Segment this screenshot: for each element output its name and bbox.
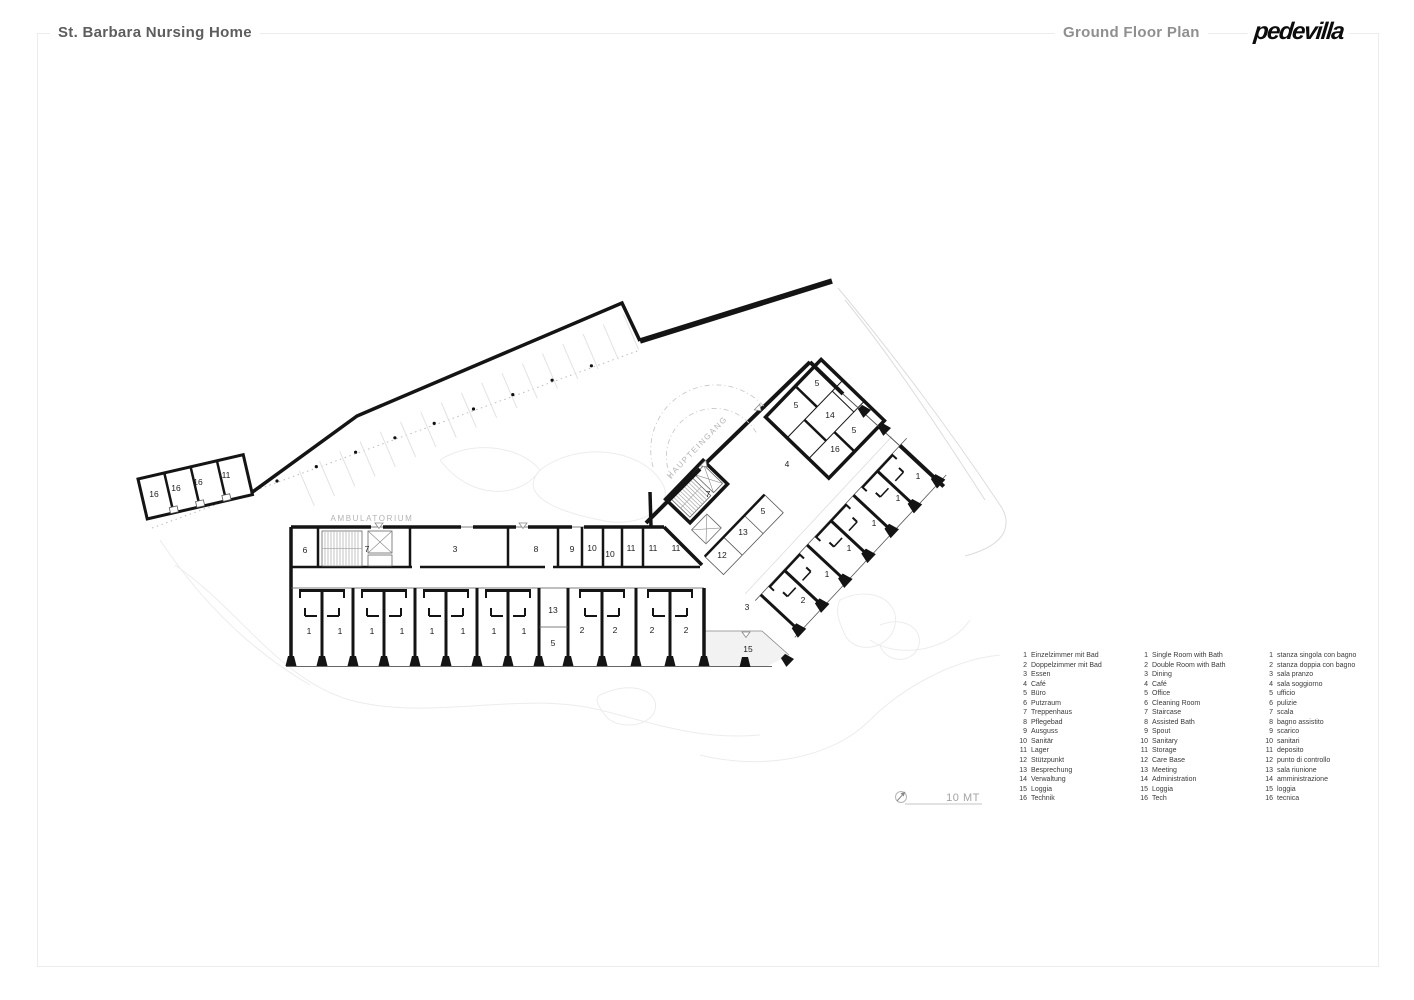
legend-item-label: Staircase (1152, 708, 1181, 718)
legend-item: 13sala riunione (1262, 766, 1383, 776)
compass-north-arrow-icon (896, 792, 907, 803)
legend-item: 11deposito (1262, 746, 1383, 756)
legend-item: 2Doppelzimmer mit Bad (1016, 661, 1137, 671)
legend-item-label: amministrazione (1277, 775, 1328, 785)
room-label: 11 (649, 543, 658, 553)
legend: 1Einzelzimmer mit Bad2Doppelzimmer mit B… (1016, 651, 1383, 804)
room-label: 11 (672, 543, 681, 553)
legend-item-number: 4 (1137, 680, 1148, 690)
room-label: 1 (307, 626, 312, 636)
legend-item-label: Café (1152, 680, 1167, 690)
legend-item-number: 2 (1137, 661, 1148, 671)
legend-item-label: Sanitär (1031, 737, 1053, 747)
room-label: 1 (896, 493, 901, 503)
room-label: 7 (365, 544, 370, 554)
legend-item-label: Technik (1031, 794, 1055, 804)
legend-item-number: 4 (1262, 680, 1273, 690)
plan-annotation: AMBULATORIUM (331, 514, 414, 523)
legend-item-number: 1 (1137, 651, 1148, 661)
site-walls (247, 281, 832, 496)
legend-item-label: sala riunione (1277, 766, 1317, 776)
room-label: 16 (193, 477, 203, 487)
pedevilla-logo: pedevilla (1247, 18, 1351, 46)
room-label: 8 (534, 544, 539, 554)
legend-item-number: 13 (1262, 766, 1273, 776)
room-label: 16 (149, 489, 159, 499)
legend-item-number: 8 (1137, 718, 1148, 728)
legend-item-number: 12 (1137, 756, 1148, 766)
legend-item: 3sala pranzo (1262, 670, 1383, 680)
legend-item-number: 14 (1262, 775, 1273, 785)
legend-item-label: bagno assistito (1277, 718, 1324, 728)
room-label: 1 (825, 569, 830, 579)
room-label: 1 (400, 626, 405, 636)
legend-item-number: 11 (1262, 746, 1273, 756)
legend-item-label: Café (1031, 680, 1046, 690)
room-label: 1 (872, 518, 877, 528)
room-label: 1 (522, 626, 527, 636)
legend-item: 14Verwaltung (1016, 775, 1137, 785)
legend-item-label: scarico (1277, 727, 1299, 737)
legend-item: 13Meeting (1137, 766, 1262, 776)
legend-item-label: Stützpunkt (1031, 756, 1064, 766)
room-label: 11 (222, 470, 231, 480)
legend-item-label: Cleaning Room (1152, 699, 1200, 709)
room-label: 2 (650, 625, 655, 635)
room-label: 2 (613, 625, 618, 635)
legend-item-number: 13 (1137, 766, 1148, 776)
room-label: 5 (551, 638, 556, 648)
legend-column-it: 1stanza singola con bagno2stanza doppia … (1262, 651, 1383, 804)
project-title: St. Barbara Nursing Home (50, 24, 260, 41)
legend-item-label: Administration (1152, 775, 1196, 785)
legend-item-label: Sanitary (1152, 737, 1178, 747)
legend-item: 15Loggia (1137, 785, 1262, 795)
legend-item-number: 16 (1016, 794, 1027, 804)
legend-item-number: 15 (1137, 785, 1148, 795)
legend-item-number: 3 (1016, 670, 1027, 680)
legend-item-number: 8 (1016, 718, 1027, 728)
room-label: 5 (852, 425, 857, 435)
room-label: 1 (847, 543, 852, 553)
legend-item: 8Pflegebad (1016, 718, 1137, 728)
legend-item-label: Besprechung (1031, 766, 1072, 776)
legend-item: 4Café (1016, 680, 1137, 690)
legend-item-number: 6 (1137, 699, 1148, 709)
legend-item-number: 2 (1262, 661, 1273, 671)
bedroom-wing (745, 430, 950, 643)
legend-item-number: 5 (1016, 689, 1027, 699)
legend-item-number: 7 (1137, 708, 1148, 718)
room-label: 12 (717, 550, 727, 560)
legend-item-number: 14 (1137, 775, 1148, 785)
legend-item: 8bagno assistito (1262, 718, 1383, 728)
legend-item: 5Office (1137, 689, 1262, 699)
room-label: 2 (580, 625, 585, 635)
legend-item-label: Putzraum (1031, 699, 1061, 709)
legend-item-number: 5 (1262, 689, 1273, 699)
legend-item: 9Spout (1137, 727, 1262, 737)
legend-item-label: Treppenhaus (1031, 708, 1072, 718)
legend-item-number: 15 (1262, 785, 1273, 795)
room-label: 10 (605, 549, 615, 559)
legend-item: 4Café (1137, 680, 1262, 690)
legend-item: 3Dining (1137, 670, 1262, 680)
legend-item-number: 2 (1016, 661, 1027, 671)
legend-item-label: Lager (1031, 746, 1049, 756)
room-label: 7 (706, 489, 711, 499)
legend-item-number: 16 (1262, 794, 1273, 804)
legend-item: 9Ausguss (1016, 727, 1137, 737)
legend-item-label: Ausguss (1031, 727, 1058, 737)
legend-item-label: Office (1152, 689, 1170, 699)
legend-item-label: tecnica (1277, 794, 1299, 804)
legend-item-number: 13 (1016, 766, 1027, 776)
legend-item: 6pulizie (1262, 699, 1383, 709)
legend-item-label: Einzelzimmer mit Bad (1031, 651, 1099, 661)
room-label: 2 (684, 625, 689, 635)
legend-item-number: 6 (1016, 699, 1027, 709)
legend-item: 8Assisted Bath (1137, 718, 1262, 728)
legend-item-label: Büro (1031, 689, 1046, 699)
legend-item: 13Besprechung (1016, 766, 1137, 776)
legend-item-label: Essen (1031, 670, 1050, 680)
room-label: 5 (815, 378, 820, 388)
legend-item: 10sanitari (1262, 737, 1383, 747)
room-label: 2 (801, 595, 806, 605)
room-label: 4 (785, 459, 790, 469)
legend-item-number: 9 (1262, 727, 1273, 737)
legend-item-number: 4 (1016, 680, 1027, 690)
legend-item: 5Büro (1016, 689, 1137, 699)
room-label: 1 (492, 626, 497, 636)
legend-item: 15loggia (1262, 785, 1383, 795)
legend-item-label: Loggia (1031, 785, 1052, 795)
legend-item: 14amministrazione (1262, 775, 1383, 785)
room-label: 1 (338, 626, 343, 636)
legend-item-number: 10 (1137, 737, 1148, 747)
legend-item: 10Sanitary (1137, 737, 1262, 747)
legend-item-label: sala pranzo (1277, 670, 1313, 680)
legend-item-number: 8 (1262, 718, 1273, 728)
room-label: 10 (587, 543, 597, 553)
legend-item: 11Lager (1016, 746, 1137, 756)
room-label: 6 (303, 545, 308, 555)
legend-item: 11Storage (1137, 746, 1262, 756)
room-label: 5 (794, 400, 799, 410)
legend-item: 9scarico (1262, 727, 1383, 737)
legend-item-number: 11 (1137, 746, 1148, 756)
legend-item: 14Administration (1137, 775, 1262, 785)
legend-item: 16Tech (1137, 794, 1262, 804)
legend-item: 7Treppenhaus (1016, 708, 1137, 718)
legend-item-number: 3 (1137, 670, 1148, 680)
legend-item-label: stanza singola con bagno (1277, 651, 1356, 661)
room-label: 5 (761, 506, 766, 516)
legend-item-label: Assisted Bath (1152, 718, 1195, 728)
legend-item-label: sanitari (1277, 737, 1300, 747)
legend-item-number: 15 (1016, 785, 1027, 795)
legend-item: 12Stützpunkt (1016, 756, 1137, 766)
room-label: 16 (830, 444, 840, 454)
legend-item-label: ufficio (1277, 689, 1295, 699)
legend-item: 1Einzelzimmer mit Bad (1016, 651, 1137, 661)
room-label: 9 (570, 544, 575, 554)
legend-item-label: Dining (1152, 670, 1172, 680)
plan-annotation: 10 MT (946, 792, 980, 804)
legend-item-number: 9 (1016, 727, 1027, 737)
legend-item: 12Care Base (1137, 756, 1262, 766)
legend-column-de: 1Einzelzimmer mit Bad2Doppelzimmer mit B… (1016, 651, 1137, 804)
room-label: 3 (453, 544, 458, 554)
legend-item-number: 16 (1137, 794, 1148, 804)
legend-item: 1stanza singola con bagno (1262, 651, 1383, 661)
legend-item-number: 5 (1137, 689, 1148, 699)
legend-item: 6Putzraum (1016, 699, 1137, 709)
legend-item: 16Technik (1016, 794, 1137, 804)
legend-item: 15Loggia (1016, 785, 1137, 795)
legend-item: 4sala soggiorno (1262, 680, 1383, 690)
legend-item-label: Doppelzimmer mit Bad (1031, 661, 1102, 671)
legend-item-label: Storage (1152, 746, 1177, 756)
site-landscape-contours (160, 448, 1000, 762)
legend-item: 5ufficio (1262, 689, 1383, 699)
legend-item-number: 7 (1016, 708, 1027, 718)
legend-item-label: Loggia (1152, 785, 1173, 795)
legend-item-number: 11 (1016, 746, 1027, 756)
legend-item: 3Essen (1016, 670, 1137, 680)
legend-item-number: 1 (1262, 651, 1273, 661)
legend-item-label: pulizie (1277, 699, 1297, 709)
legend-item-label: Spout (1152, 727, 1170, 737)
room-label: 16 (171, 483, 181, 493)
legend-item-number: 10 (1262, 737, 1273, 747)
legend-item: 1Single Room with Bath (1137, 651, 1262, 661)
legend-item: 7Staircase (1137, 708, 1262, 718)
legend-item-label: scala (1277, 708, 1293, 718)
legend-item: 16tecnica (1262, 794, 1383, 804)
room-label: 11 (627, 543, 636, 553)
legend-item-number: 10 (1016, 737, 1027, 747)
room-label: 1 (430, 626, 435, 636)
legend-item: 6Cleaning Room (1137, 699, 1262, 709)
legend-item-label: stanza doppia con bagno (1277, 661, 1355, 671)
legend-item-number: 9 (1137, 727, 1148, 737)
legend-item-label: loggia (1277, 785, 1296, 795)
legend-item-number: 1 (1016, 651, 1027, 661)
room-label: 1 (916, 471, 921, 481)
room-label: 13 (548, 605, 558, 615)
legend-item-number: 6 (1262, 699, 1273, 709)
sheet-title: Ground Floor Plan (1055, 24, 1208, 41)
legend-item-label: punto di controllo (1277, 756, 1330, 766)
legend-item: 10Sanitär (1016, 737, 1137, 747)
legend-item-label: Care Base (1152, 756, 1185, 766)
legend-item: 12punto di controllo (1262, 756, 1383, 766)
floor-plan-drawing: 1616161167389101011111175131211111111135… (0, 0, 1414, 1000)
legend-item-label: Verwaltung (1031, 775, 1066, 785)
legend-column-en: 1Single Room with Bath2Double Room with … (1137, 651, 1262, 804)
legend-item-number: 14 (1016, 775, 1027, 785)
legend-item-number: 3 (1262, 670, 1273, 680)
room-label: 13 (738, 527, 748, 537)
room-label: 1 (461, 626, 466, 636)
room-label: 1 (370, 626, 375, 636)
legend-item-label: Single Room with Bath (1152, 651, 1223, 661)
legend-item-label: Double Room with Bath (1152, 661, 1226, 671)
legend-item-label: deposito (1277, 746, 1303, 756)
parking-stalls (299, 315, 638, 506)
room-label: 15 (743, 644, 753, 654)
legend-item-label: Pflegebad (1031, 718, 1063, 728)
legend-item-label: Meeting (1152, 766, 1177, 776)
legend-item-number: 7 (1262, 708, 1273, 718)
legend-item-label: sala soggiorno (1277, 680, 1323, 690)
legend-item: 2Double Room with Bath (1137, 661, 1262, 671)
legend-item-number: 12 (1016, 756, 1027, 766)
legend-item-number: 12 (1262, 756, 1273, 766)
room-label: 3 (745, 602, 750, 612)
legend-item-label: Tech (1152, 794, 1167, 804)
legend-item: 2stanza doppia con bagno (1262, 661, 1383, 671)
legend-item: 7scala (1262, 708, 1383, 718)
room-label: 14 (825, 410, 835, 420)
